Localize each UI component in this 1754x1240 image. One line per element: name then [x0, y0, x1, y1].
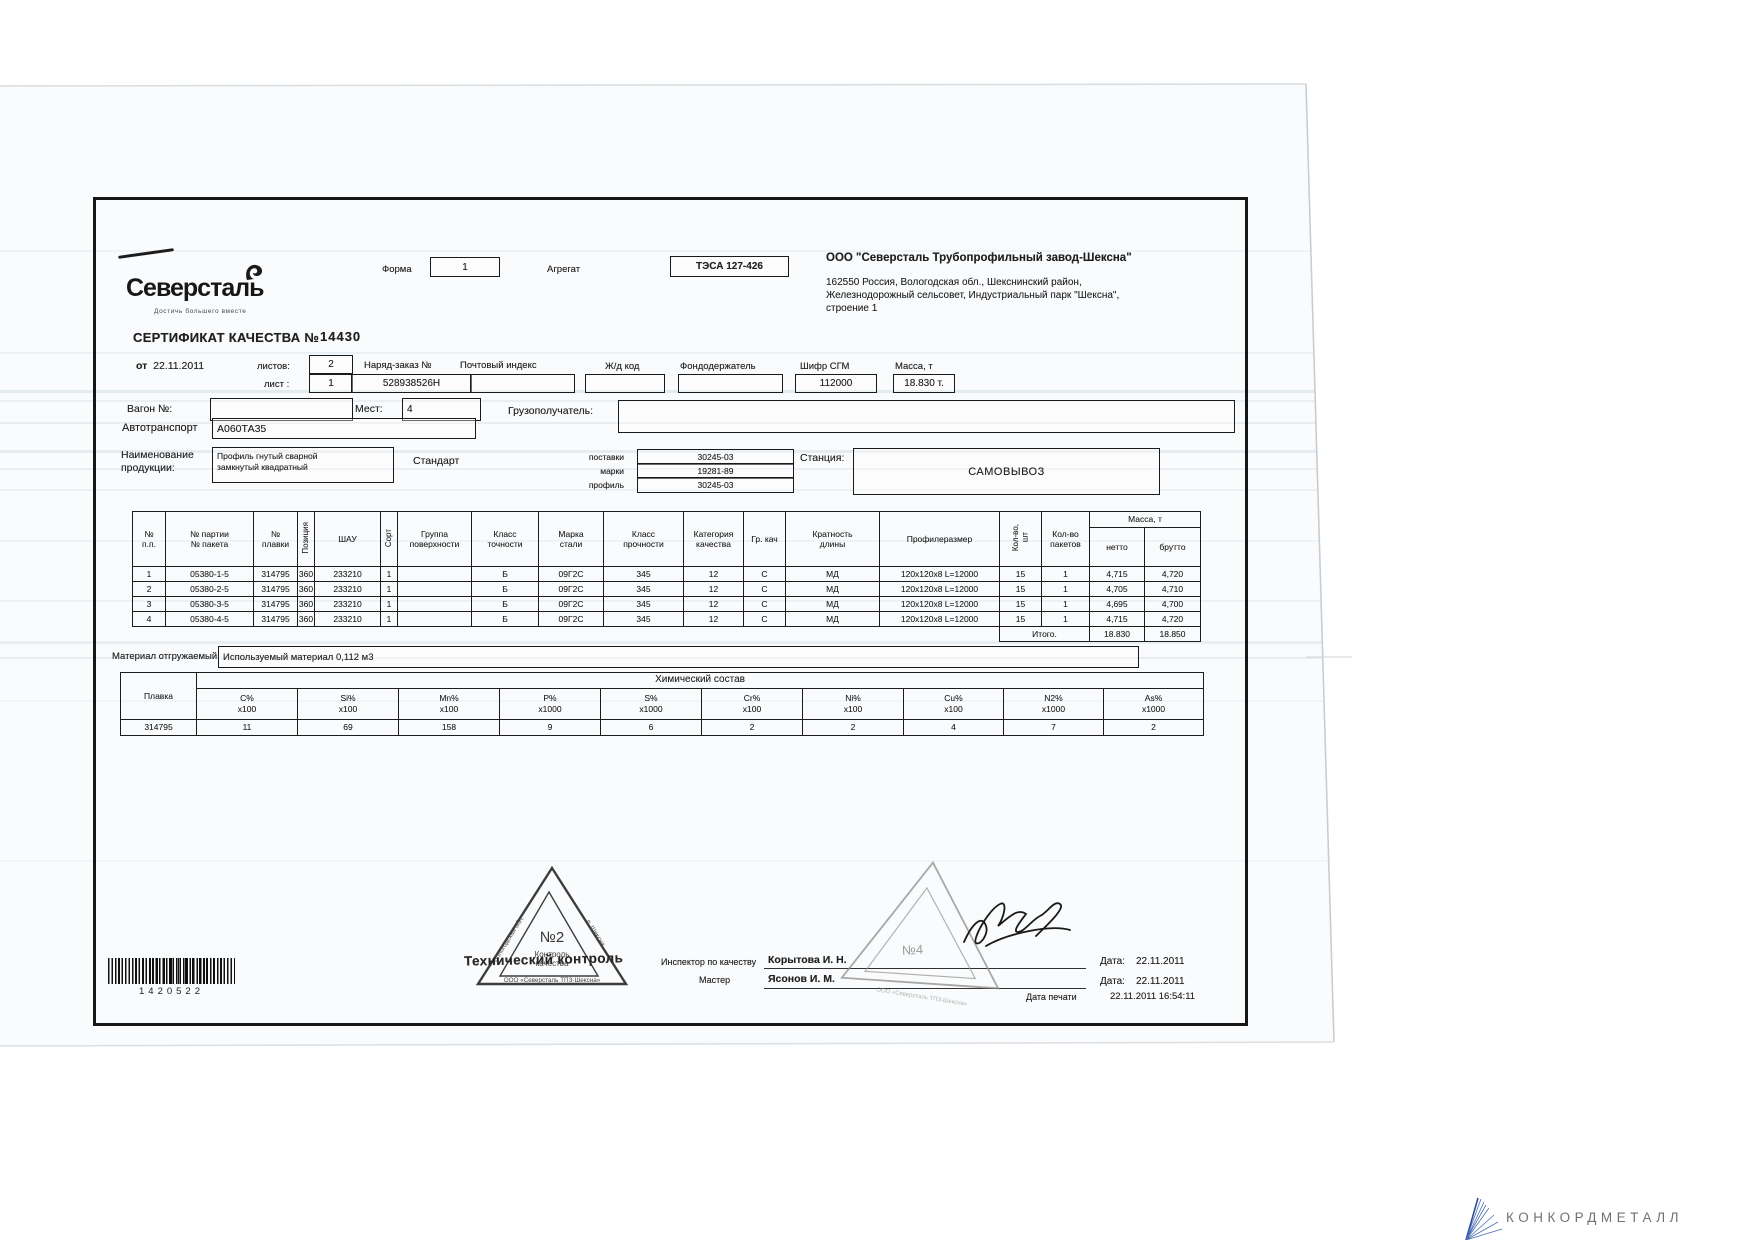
cell: 1: [1042, 612, 1090, 627]
element-symbol: As%: [1104, 693, 1203, 704]
cell: 4,715: [1090, 612, 1145, 627]
cell: 2: [133, 582, 166, 597]
element-symbol: Cr%: [702, 693, 802, 704]
zhd-box: [585, 374, 665, 393]
cell: 4,720: [1145, 567, 1201, 582]
element-symbol: Cu%: [904, 693, 1003, 704]
header-cell: № п.п.: [133, 512, 166, 567]
cert-date: 22.11.2011: [153, 360, 204, 372]
chem-value: 9: [500, 720, 601, 736]
cell: 05380-3-5: [166, 597, 254, 612]
header-cell-vertical-text: Позиция: [301, 522, 311, 554]
scan-canvas: Северсталь Достичь большего вместе Форма…: [0, 0, 1754, 1240]
header-cell-vertical-text: Сорт: [384, 529, 394, 547]
cell: 233210: [315, 582, 381, 597]
control-stamp-triangle-1: №2 Контроль качества Вологодская обл. п.…: [470, 862, 634, 990]
element-symbol: P%: [500, 693, 600, 704]
table-row: 405380-4-53147953602332101Б09Г2С34512СМД…: [133, 612, 1201, 627]
chem-value: 69: [298, 720, 399, 736]
cell: 1: [381, 597, 398, 612]
master-name: Ясонов И. М.: [768, 973, 835, 986]
cell: 345: [604, 582, 684, 597]
agregat-box: ТЭСА 127-426: [670, 256, 789, 277]
cell: 09Г2С: [539, 597, 604, 612]
header-cell: Класс прочности: [604, 512, 684, 567]
cell: 15: [1000, 597, 1042, 612]
cell: 360: [298, 597, 315, 612]
cell: 4,700: [1145, 597, 1201, 612]
severstal-logo-icon: [242, 262, 266, 284]
header-cell: № партии № пакета: [166, 512, 254, 567]
mest-label: Мест:: [355, 403, 383, 416]
date1-value: 22.11.2011: [1136, 956, 1185, 967]
stamp1-edge-bottom: ООО «Северсталь ТПЗ-Шексна»: [504, 977, 601, 984]
element-symbol: Mn%: [399, 693, 499, 704]
signature: [958, 890, 1078, 960]
itogo-row: Итого. 18.830 18.850: [133, 627, 1201, 642]
multiplier: х100: [702, 704, 802, 715]
product-name-label: Наименование продукции:: [121, 449, 194, 474]
cell: 15: [1000, 582, 1042, 597]
header-cell: Марка стали: [539, 512, 604, 567]
list-box: 1: [309, 374, 353, 393]
cell: Б: [472, 567, 539, 582]
itogo-brutto: 18.850: [1145, 627, 1201, 642]
chem-header-row2: C%х100 Si%х100 Mn%х100 P%х1000 S%х1000 C…: [121, 689, 1204, 720]
cell: 1: [1042, 597, 1090, 612]
massa-box: 18.830 т.: [893, 374, 955, 393]
cell: МД: [786, 612, 880, 627]
stancia-label: Станция:: [800, 452, 844, 465]
cell: 09Г2С: [539, 612, 604, 627]
header-cell: Категория качества: [684, 512, 744, 567]
forma-box: 1: [430, 257, 500, 277]
header-cell: Кол-во пакетов: [1042, 512, 1090, 567]
header-cell: Группа поверхности: [398, 512, 472, 567]
shifr-box: 112000: [795, 374, 877, 393]
naryad-label: Наряд-заказ №: [364, 360, 432, 371]
cell: 4,720: [1145, 612, 1201, 627]
header-cell-vertical-text: Кол-во, шт: [1011, 524, 1030, 551]
cell: 1: [381, 582, 398, 597]
main-table-header-row1: № п.п. № партии № пакета № плавки Позици…: [133, 512, 1201, 528]
cell: С: [744, 582, 786, 597]
brutto-header: брутто: [1145, 528, 1201, 567]
cell: С: [744, 597, 786, 612]
cell: 15: [1000, 567, 1042, 582]
chem-data-row: 314795 11 69 158 9 6 2 2 4 7 2: [121, 720, 1204, 736]
profil-box: 30245-03: [637, 477, 794, 493]
stamp2-number: №4: [902, 942, 924, 958]
listov-label: листов:: [257, 361, 290, 372]
chem-value: 2: [803, 720, 904, 736]
avto-box: А060ТА35: [212, 418, 476, 439]
cell: 05380-4-5: [166, 612, 254, 627]
post-index-label: Почтовый индекс: [460, 360, 537, 371]
cell: 360: [298, 582, 315, 597]
cell: МД: [786, 597, 880, 612]
multiplier: х100: [399, 704, 499, 715]
print-date-value: 22.11.2011 16:54:11: [1110, 991, 1195, 1002]
cell: 360: [298, 567, 315, 582]
stamp2-edge-bottom: ООО «Северсталь ТПЗ-Шексна»: [876, 987, 968, 1007]
chem-col-header: S%х1000: [601, 689, 702, 720]
avto-label: Автотранспорт: [122, 422, 198, 435]
konkord-brand-text: КОНКОРДМЕТАЛЛ: [1506, 1210, 1683, 1225]
shifr-label: Шифр СГМ: [800, 361, 849, 372]
cell: 314795: [254, 567, 298, 582]
cell: [398, 567, 472, 582]
marki-label: марки: [572, 466, 624, 476]
chem-value: 6: [601, 720, 702, 736]
header-cell: Класс точности: [472, 512, 539, 567]
barcode-number: 1420522: [108, 986, 235, 997]
plavka-header: Плавка: [121, 673, 197, 720]
chem-value: 11: [197, 720, 298, 736]
chem-header-row1: Плавка Химический состав: [121, 673, 1204, 689]
cell: 233210: [315, 612, 381, 627]
postavki-label: поставки: [572, 452, 624, 462]
chem-col-header: P%х1000: [500, 689, 601, 720]
cell: МД: [786, 582, 880, 597]
header-cell: ШАУ: [315, 512, 381, 567]
cell: [398, 612, 472, 627]
cell: 360: [298, 612, 315, 627]
post-index-box: [470, 374, 575, 393]
itogo-netto: 18.830: [1090, 627, 1145, 642]
list-label: лист :: [264, 379, 289, 390]
print-date-label: Дата печати: [1026, 992, 1077, 1002]
multiplier: х100: [803, 704, 903, 715]
cell: 120х120х8 L=12000: [880, 567, 1000, 582]
chem-col-header: N2%х1000: [1004, 689, 1104, 720]
element-symbol: Ni%: [803, 693, 903, 704]
cell: 314795: [254, 597, 298, 612]
chem-col-header: Ni%х100: [803, 689, 904, 720]
multiplier: х100: [298, 704, 398, 715]
cell: [398, 582, 472, 597]
cell: 1: [133, 567, 166, 582]
cell: 05380-1-5: [166, 567, 254, 582]
cell: Б: [472, 612, 539, 627]
cell: 12: [684, 567, 744, 582]
header-cell: Сорт: [381, 512, 398, 567]
pen-dash-mark: [118, 248, 174, 259]
company-address-line2: Железнодорожный сельсовет, Индустриальны…: [826, 289, 1246, 303]
stancia-box: САМОВЫВОЗ: [853, 448, 1160, 495]
cell: 345: [604, 597, 684, 612]
date-label: от: [136, 360, 147, 372]
multiplier: х1000: [500, 704, 600, 715]
fond-label: Фондодержатель: [680, 361, 756, 372]
header-cell: Кол-во, шт: [1000, 512, 1042, 567]
scanned-sheet: Северсталь Достичь большего вместе Форма…: [0, 0, 1754, 1240]
master-label: Мастер: [699, 975, 730, 986]
material-box: Используемый материал 0,112 м3: [218, 646, 1139, 668]
cell: 233210: [315, 567, 381, 582]
multiplier: х100: [904, 704, 1003, 715]
cell: 345: [604, 567, 684, 582]
multiplier: х100: [197, 704, 297, 715]
multiplier: х1000: [601, 704, 701, 715]
severstal-logo-tagline: Достичь большего вместе: [154, 308, 246, 315]
certificate-frame: Северсталь Достичь большего вместе Форма…: [93, 197, 1248, 1026]
cell: 314795: [254, 582, 298, 597]
naryad-box: 528938526Н: [351, 374, 472, 393]
cell: 3: [133, 597, 166, 612]
certificate-number: 14430: [320, 329, 361, 344]
cell: 12: [684, 612, 744, 627]
agregat-label: Агрегат: [547, 264, 580, 275]
date2-label: Дата:: [1100, 976, 1125, 987]
cell: 233210: [315, 597, 381, 612]
chem-col-header: Si%х100: [298, 689, 399, 720]
company-address-line1: 162550 Россия, Вологодская обл., Шекснин…: [826, 276, 1246, 290]
chem-value: 2: [702, 720, 803, 736]
cell: 4,705: [1090, 582, 1145, 597]
listov-box: 2: [309, 355, 353, 374]
product-box: Профиль гнутый сварной замкнутый квадрат…: [212, 447, 394, 483]
cell: Б: [472, 582, 539, 597]
vagon-label: Вагон №:: [127, 403, 172, 416]
cell: [398, 597, 472, 612]
cell: 4,710: [1145, 582, 1201, 597]
itogo-label: Итого.: [1000, 627, 1090, 642]
gruzo-label: Грузополучатель:: [508, 405, 593, 418]
table-row: 205380-2-53147953602332101Б09Г2С34512СМД…: [133, 582, 1201, 597]
cell: 4,715: [1090, 567, 1145, 582]
cell: 15: [1000, 612, 1042, 627]
cell: С: [744, 567, 786, 582]
chem-col-header: Cr%х100: [702, 689, 803, 720]
cell: 12: [684, 582, 744, 597]
date2-value: 22.11.2011: [1136, 976, 1185, 987]
element-symbol: N2%: [1004, 693, 1103, 704]
cell: 120х120х8 L=12000: [880, 597, 1000, 612]
material-label: Материал отгружаемый:: [112, 651, 220, 662]
cell: 120х120х8 L=12000: [880, 612, 1000, 627]
chem-col-header: As%х1000: [1104, 689, 1204, 720]
chem-col-header: Mn%х100: [399, 689, 500, 720]
chem-title: Химический состав: [197, 673, 1204, 689]
chem-table: Плавка Химический состав C%х100 Si%х100 …: [120, 672, 1204, 736]
multiplier: х1000: [1104, 704, 1203, 715]
header-cell: Гр. кач: [744, 512, 786, 567]
cell: 4,695: [1090, 597, 1145, 612]
cell: 120х120х8 L=12000: [880, 582, 1000, 597]
chem-value: 2: [1104, 720, 1204, 736]
fond-box: [678, 374, 783, 393]
inspector-name: Корытова И. Н.: [768, 954, 847, 967]
cell: 314795: [254, 612, 298, 627]
massa-group-header: Масса, т: [1090, 512, 1201, 528]
cell: 09Г2С: [539, 567, 604, 582]
chem-value: 7: [1004, 720, 1104, 736]
netto-header: нетто: [1090, 528, 1145, 567]
element-symbol: S%: [601, 693, 701, 704]
inspector-label: Инспектор по качеству: [661, 957, 756, 968]
cell: 05380-2-5: [166, 582, 254, 597]
header-cell: Профилеразмер: [880, 512, 1000, 567]
table-row: 105380-1-53147953602332101Б09Г2С34512СМД…: [133, 567, 1201, 582]
chem-col-header: Cu%х100: [904, 689, 1004, 720]
chem-value: 158: [399, 720, 500, 736]
itogo-spacer: [133, 627, 1000, 642]
multiplier: х1000: [1004, 704, 1103, 715]
zhd-label: Ж/д код: [605, 361, 639, 372]
massa-label: Масса, т: [895, 361, 933, 372]
company-address-line3: строение 1: [826, 302, 1246, 316]
forma-label: Форма: [382, 264, 412, 275]
cell: 1: [1042, 567, 1090, 582]
header-cell: № плавки: [254, 512, 298, 567]
cell: Б: [472, 597, 539, 612]
stamp1-number: №2: [540, 929, 564, 946]
plavka-value: 314795: [121, 720, 197, 736]
header-cell: Кратность длины: [786, 512, 880, 567]
main-table: № п.п. № партии № пакета № плавки Позици…: [132, 511, 1201, 642]
header-cell: Позиция: [298, 512, 315, 567]
standard-label: Стандарт: [413, 455, 459, 468]
table-row: 305380-3-53147953602332101Б09Г2С34512СМД…: [133, 597, 1201, 612]
cell: С: [744, 612, 786, 627]
cell: 1: [1042, 582, 1090, 597]
chem-col-header: C%х100: [197, 689, 298, 720]
company-name: ООО "Северсталь Трубопрофильный завод-Ше…: [826, 252, 1246, 264]
cell: МД: [786, 567, 880, 582]
date1-label: Дата:: [1100, 956, 1125, 967]
cell: 1: [381, 612, 398, 627]
element-symbol: C%: [197, 693, 297, 704]
cell: 4: [133, 612, 166, 627]
cell: 345: [604, 612, 684, 627]
cell: 12: [684, 597, 744, 612]
chem-value: 4: [904, 720, 1004, 736]
element-symbol: Si%: [298, 693, 398, 704]
konkord-logo-icon: [1458, 1196, 1506, 1240]
barcode: [108, 958, 235, 984]
stamp1-edge-right: п. Шексна: [584, 919, 606, 949]
gruzo-box: [618, 400, 1235, 433]
cell: 09Г2С: [539, 582, 604, 597]
certificate-title: СЕРТИФИКАТ КАЧЕСТВА №: [133, 330, 319, 345]
profil-label: профиль: [572, 480, 624, 490]
cell: 1: [381, 567, 398, 582]
